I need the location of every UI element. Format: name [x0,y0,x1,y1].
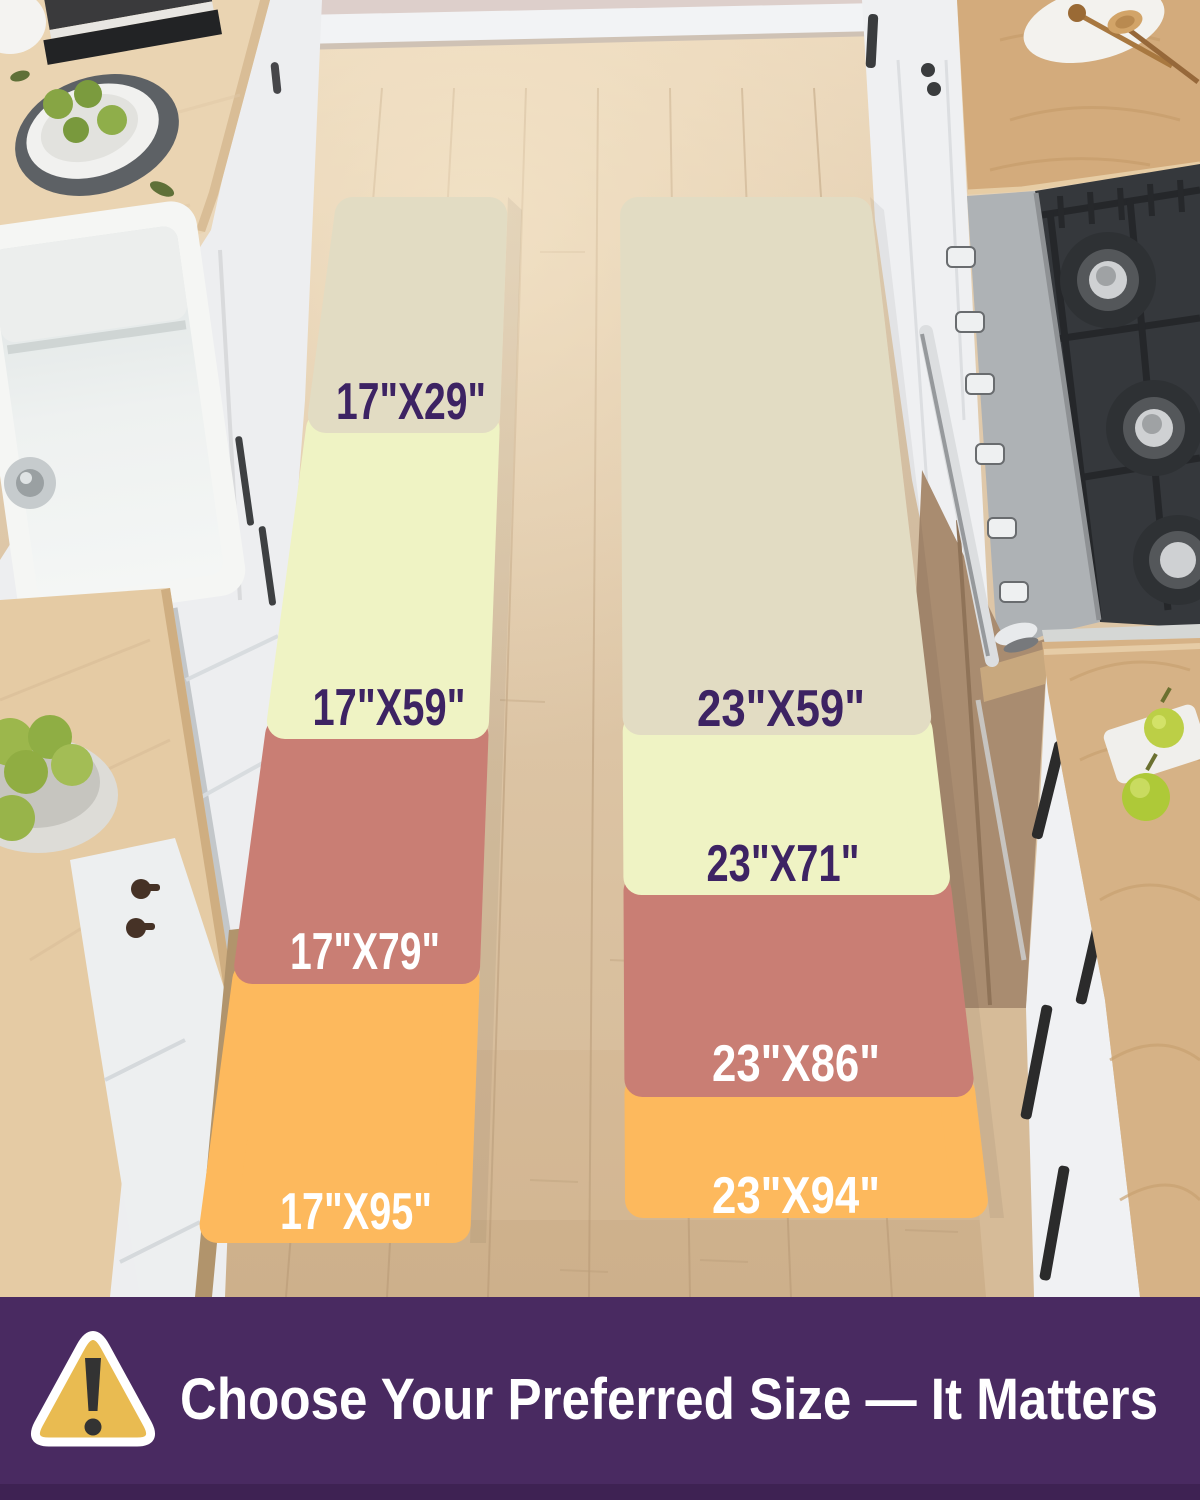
svg-text:17"X95": 17"X95" [280,1183,432,1241]
svg-text:23"X71": 23"X71" [707,835,860,893]
svg-text:23"X94": 23"X94" [712,1167,880,1225]
svg-text:17"X79": 17"X79" [290,923,440,981]
svg-text:17"X29": 17"X29" [336,373,486,431]
svg-text:17"X59": 17"X59" [313,679,466,737]
svg-text:Choose Your Preferred Size — I: Choose Your Preferred Size — It Matters [180,1367,1158,1432]
svg-text:23"X59": 23"X59" [697,680,865,738]
svg-text:23"X86": 23"X86" [712,1035,880,1093]
